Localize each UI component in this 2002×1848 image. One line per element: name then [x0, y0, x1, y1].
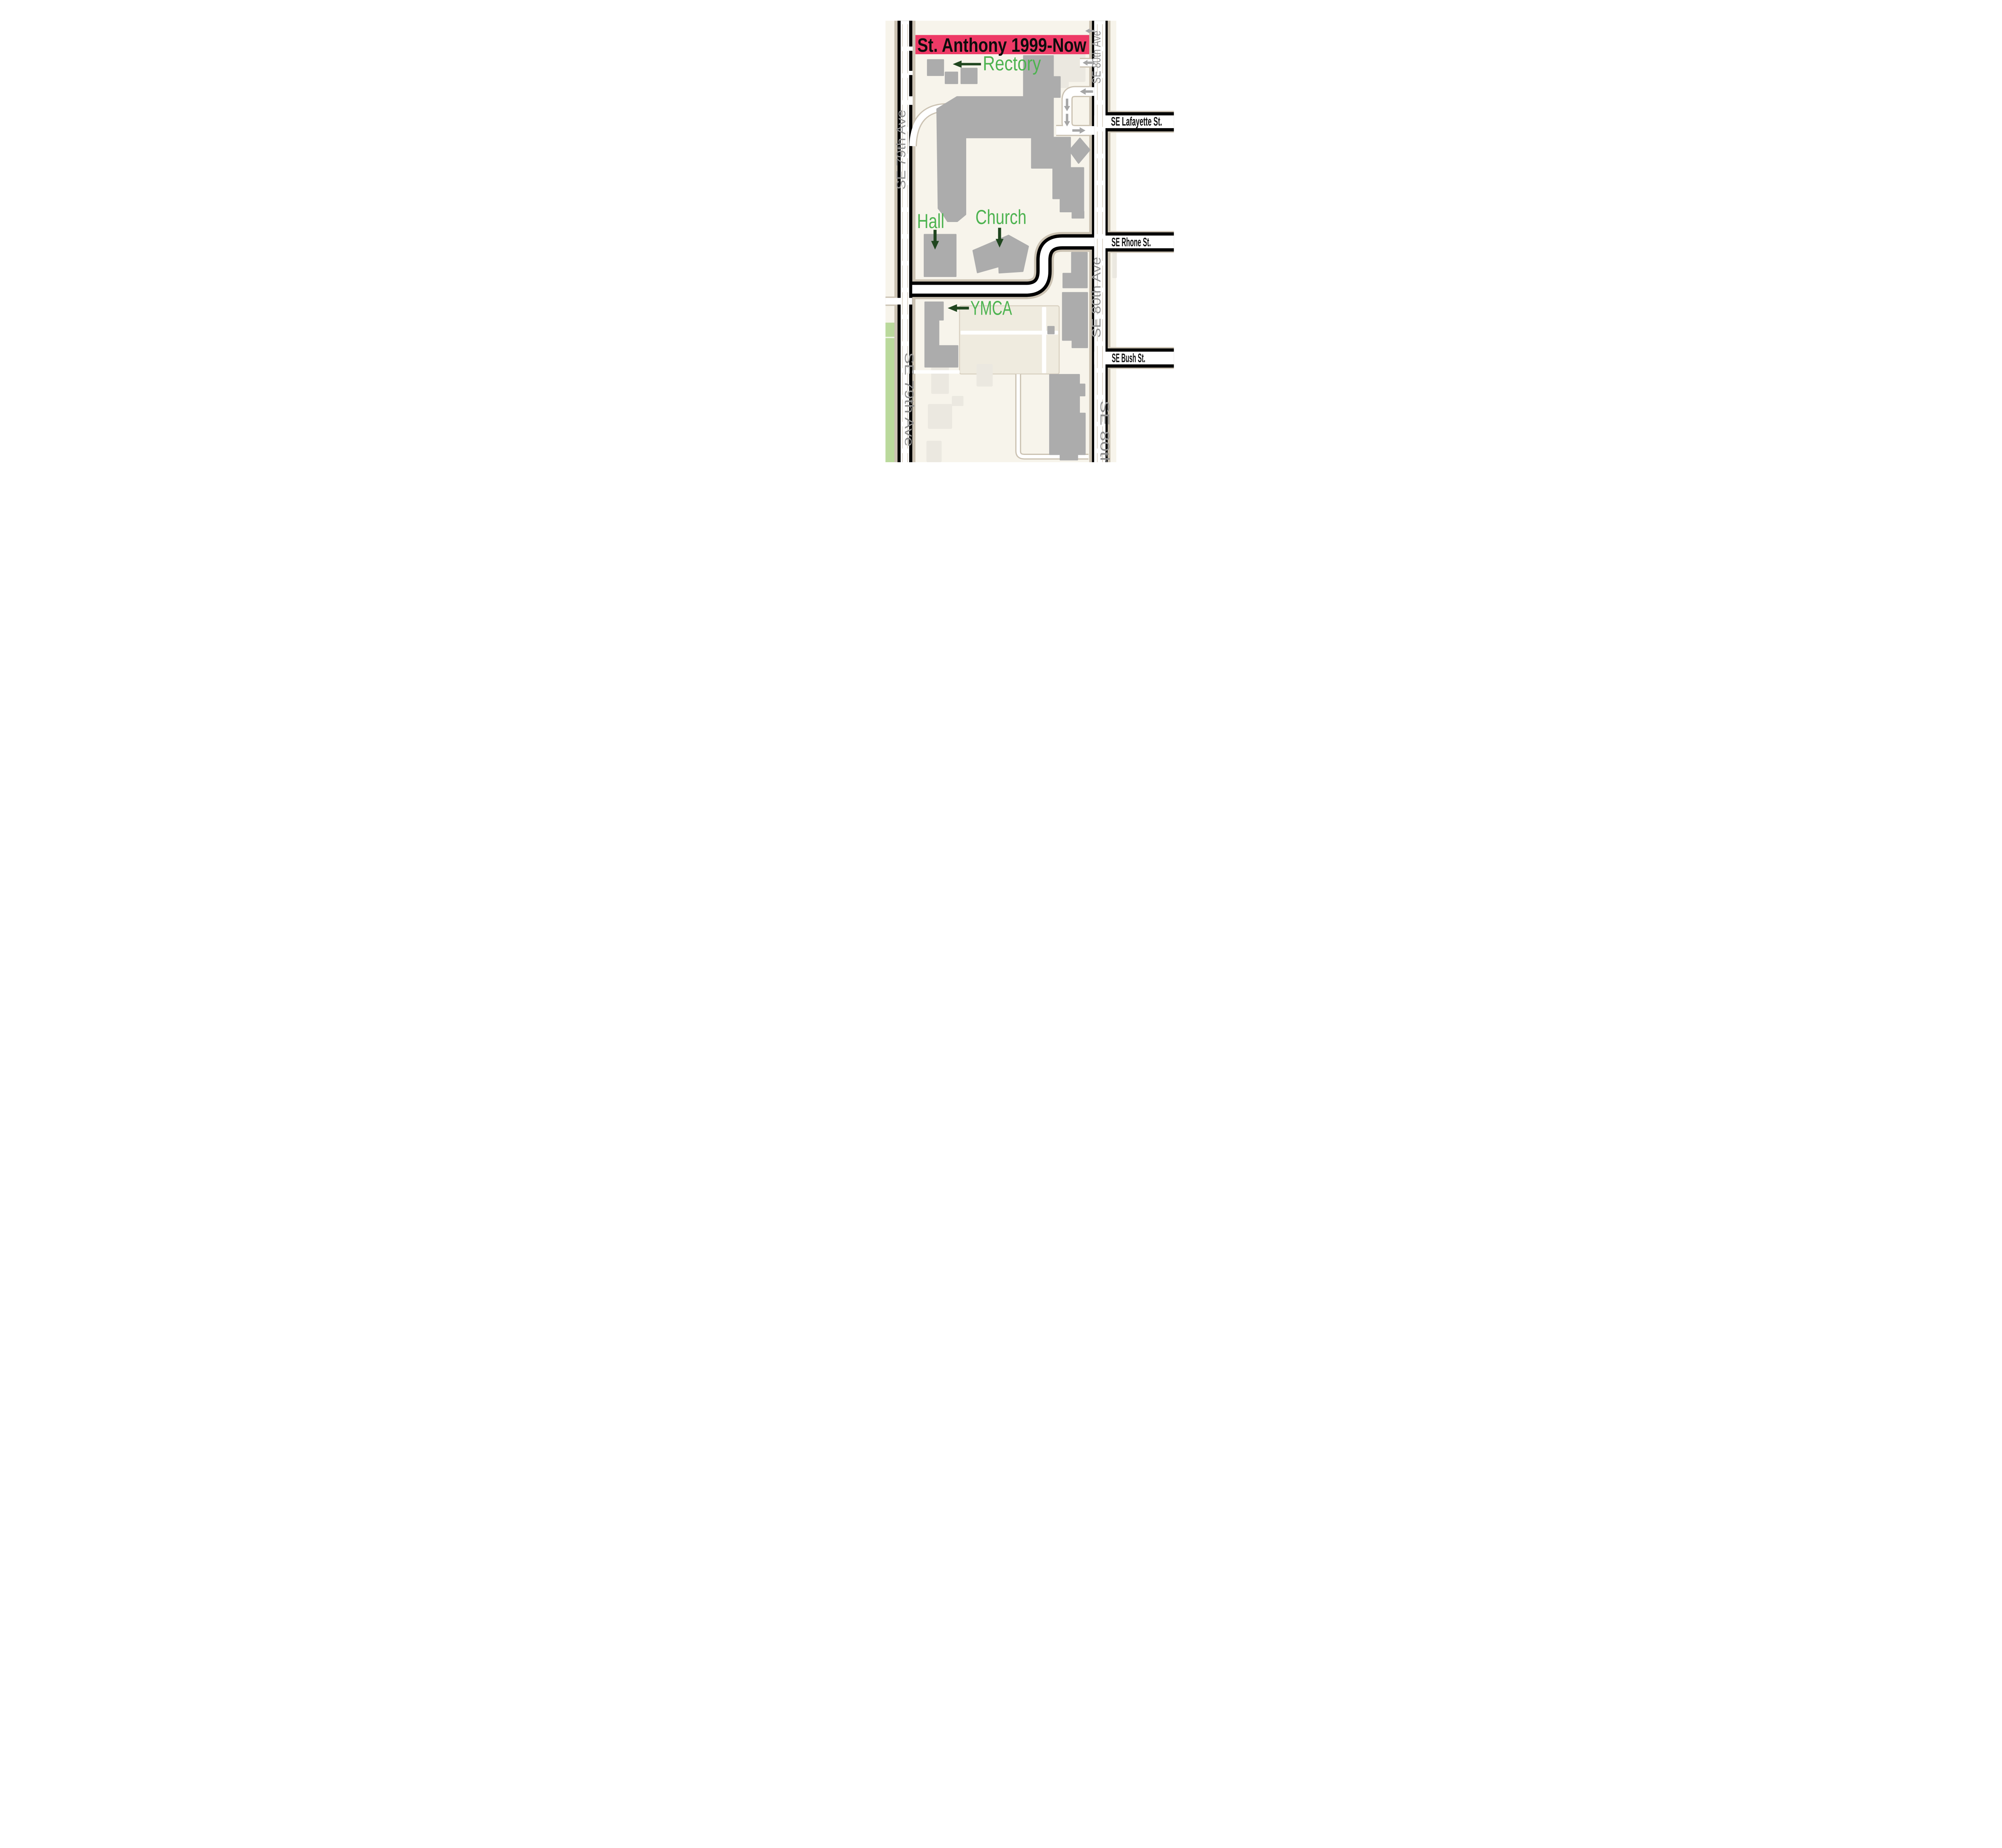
se-80th-ave-label-middle: SE 80th Ave	[1089, 257, 1103, 338]
se-79th-ave-label-upper: SE 79th Ave	[894, 110, 908, 190]
east-building-lower	[1063, 293, 1088, 347]
annotated-street-map: St. Anthony 1999-Now	[751, 0, 1251, 462]
se-80th-ave-label-lower: SE 80th	[1098, 400, 1112, 462]
church-label: Church	[976, 206, 1026, 228]
se-bush-st-label: SE Bush St.	[1112, 351, 1145, 365]
light-building	[976, 364, 993, 387]
parking-lane	[1042, 307, 1046, 373]
se-rhone-st-label: SE Rhone St.	[1111, 235, 1151, 249]
school-east-annex	[1032, 137, 1070, 168]
driveway-gap	[908, 96, 913, 105]
south-large-building	[1050, 375, 1085, 460]
driveway-gap	[908, 47, 913, 51]
small-building	[1048, 327, 1054, 334]
driveway-gap	[908, 71, 913, 75]
school-se-step	[1072, 211, 1084, 218]
hall-building	[925, 235, 956, 276]
light-building	[952, 396, 963, 406]
rectory-building	[928, 60, 944, 75]
se-80th-ave-label-upper: SE 80th Ave	[1090, 31, 1103, 84]
light-building	[927, 441, 942, 462]
school-north-wing-step	[1053, 77, 1060, 97]
map-page: St. Anthony 1999-Now	[751, 0, 1251, 462]
se-lafayette-st-label: SE Lafayette St.	[1111, 115, 1162, 129]
light-building	[928, 404, 952, 429]
parking-lane	[912, 370, 960, 374]
rectory-outbuilding	[946, 72, 958, 83]
hall-label: Hall	[917, 210, 944, 233]
rectory-outbuilding	[961, 68, 977, 83]
se-79th-ave-label-lower: SE 79th Ave	[902, 353, 916, 447]
ymca-label: YMCA	[970, 297, 1012, 319]
rectory-label: Rectory	[983, 52, 1041, 75]
